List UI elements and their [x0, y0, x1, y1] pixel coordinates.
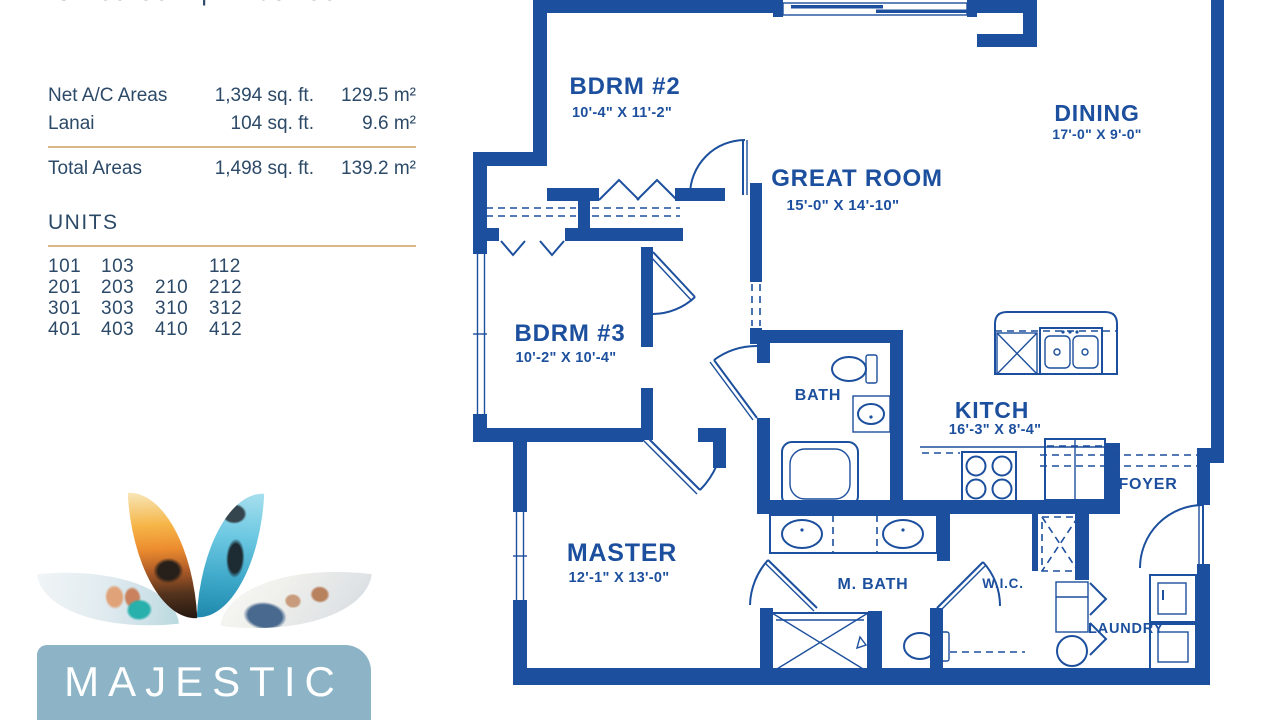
- area-sqm: 9.6 m²: [314, 110, 416, 138]
- room-label-great-room: GREAT ROOM: [771, 165, 943, 192]
- room-dims-bdrm3: 10'-2" X 10'-4": [516, 350, 617, 366]
- divider: [48, 146, 416, 148]
- unit-number: 412: [209, 319, 263, 340]
- units-grid: 101 103 112 201 203 210 212 301 303 310 …: [48, 256, 416, 340]
- room-label-mbath: M. BATH: [837, 576, 908, 593]
- room-dims-bdrm2: 10'-4" X 11'-2": [572, 105, 672, 121]
- room-label-bath: BATH: [795, 387, 841, 404]
- area-sqft: 1,498 sq. ft.: [198, 155, 314, 183]
- room-label-wic: W.I.C.: [982, 576, 1024, 591]
- unit-number: 301: [48, 298, 101, 319]
- table-row: Net A/C Areas 1,394 sq. ft. 129.5 m²: [48, 82, 416, 110]
- unit-number: 403: [101, 319, 155, 340]
- area-sqm: 139.2 m²: [314, 155, 416, 183]
- divider: [48, 245, 416, 247]
- floor-plan: BDRM #2 10'-4" X 11'-2" DINING 17'-0" X …: [440, 0, 1240, 700]
- room-label-bdrm2: BDRM #2: [570, 73, 681, 100]
- area-label: Lanai: [48, 110, 198, 138]
- room-dims-master: 12'-1" X 13'-0": [569, 570, 670, 586]
- room-label-laundry: LAUNDRY: [1088, 621, 1164, 637]
- room-label-foyer: FOYER: [1118, 476, 1177, 493]
- room-label-master: MASTER: [567, 539, 677, 567]
- unit-number: 401: [48, 319, 101, 340]
- floorplan-sheet: 3 Bedroom | 2 Bathroom Net A/C Areas 1,3…: [0, 0, 1280, 720]
- unit-number: 201: [48, 277, 101, 298]
- unit-number: 203: [101, 277, 155, 298]
- table-row: Lanai 104 sq. ft. 9.6 m²: [48, 110, 416, 138]
- brand-banner: MAJESTIC: [37, 645, 371, 720]
- area-sqm: 129.5 m²: [314, 82, 416, 110]
- area-sqft: 1,394 sq. ft.: [198, 82, 314, 110]
- unit-number: 312: [209, 298, 263, 319]
- unit-number: 112: [209, 256, 263, 277]
- areas-table: Net A/C Areas 1,394 sq. ft. 129.5 m² Lan…: [48, 82, 416, 183]
- area-label: Net A/C Areas: [48, 82, 198, 110]
- units-section: UNITS 101 103 112 201 203 210 212 301 30…: [48, 210, 416, 340]
- lifestyle-petal-logo: [30, 483, 360, 648]
- unit-number: 101: [48, 256, 101, 277]
- room-dims-dining: 17'-0" X 9'-0": [1052, 126, 1142, 142]
- unit-number: 410: [155, 319, 209, 340]
- room-label-dining: DINING: [1054, 100, 1139, 126]
- room-dims-kitch: 16'-3" X 8'-4": [949, 422, 1042, 438]
- unit-number: 103: [101, 256, 155, 277]
- brand-name: MAJESTIC: [64, 658, 344, 706]
- area-sqft: 104 sq. ft.: [198, 110, 314, 138]
- page-subtitle: 3 Bedroom | 2 Bathroom: [56, 0, 361, 7]
- table-row-total: Total Areas 1,498 sq. ft. 139.2 m²: [48, 155, 416, 183]
- unit-number: 212: [209, 277, 263, 298]
- room-label-kitch: KITCH: [955, 397, 1029, 423]
- area-label: Total Areas: [48, 155, 198, 183]
- room-label-bdrm3: BDRM #3: [515, 320, 626, 347]
- units-heading: UNITS: [48, 210, 416, 236]
- room-dims-great-room: 15'-0" X 14'-10": [787, 197, 900, 214]
- unit-number: 310: [155, 298, 209, 319]
- unit-number: 210: [155, 277, 209, 298]
- unit-number: 303: [101, 298, 155, 319]
- unit-number: [155, 256, 209, 277]
